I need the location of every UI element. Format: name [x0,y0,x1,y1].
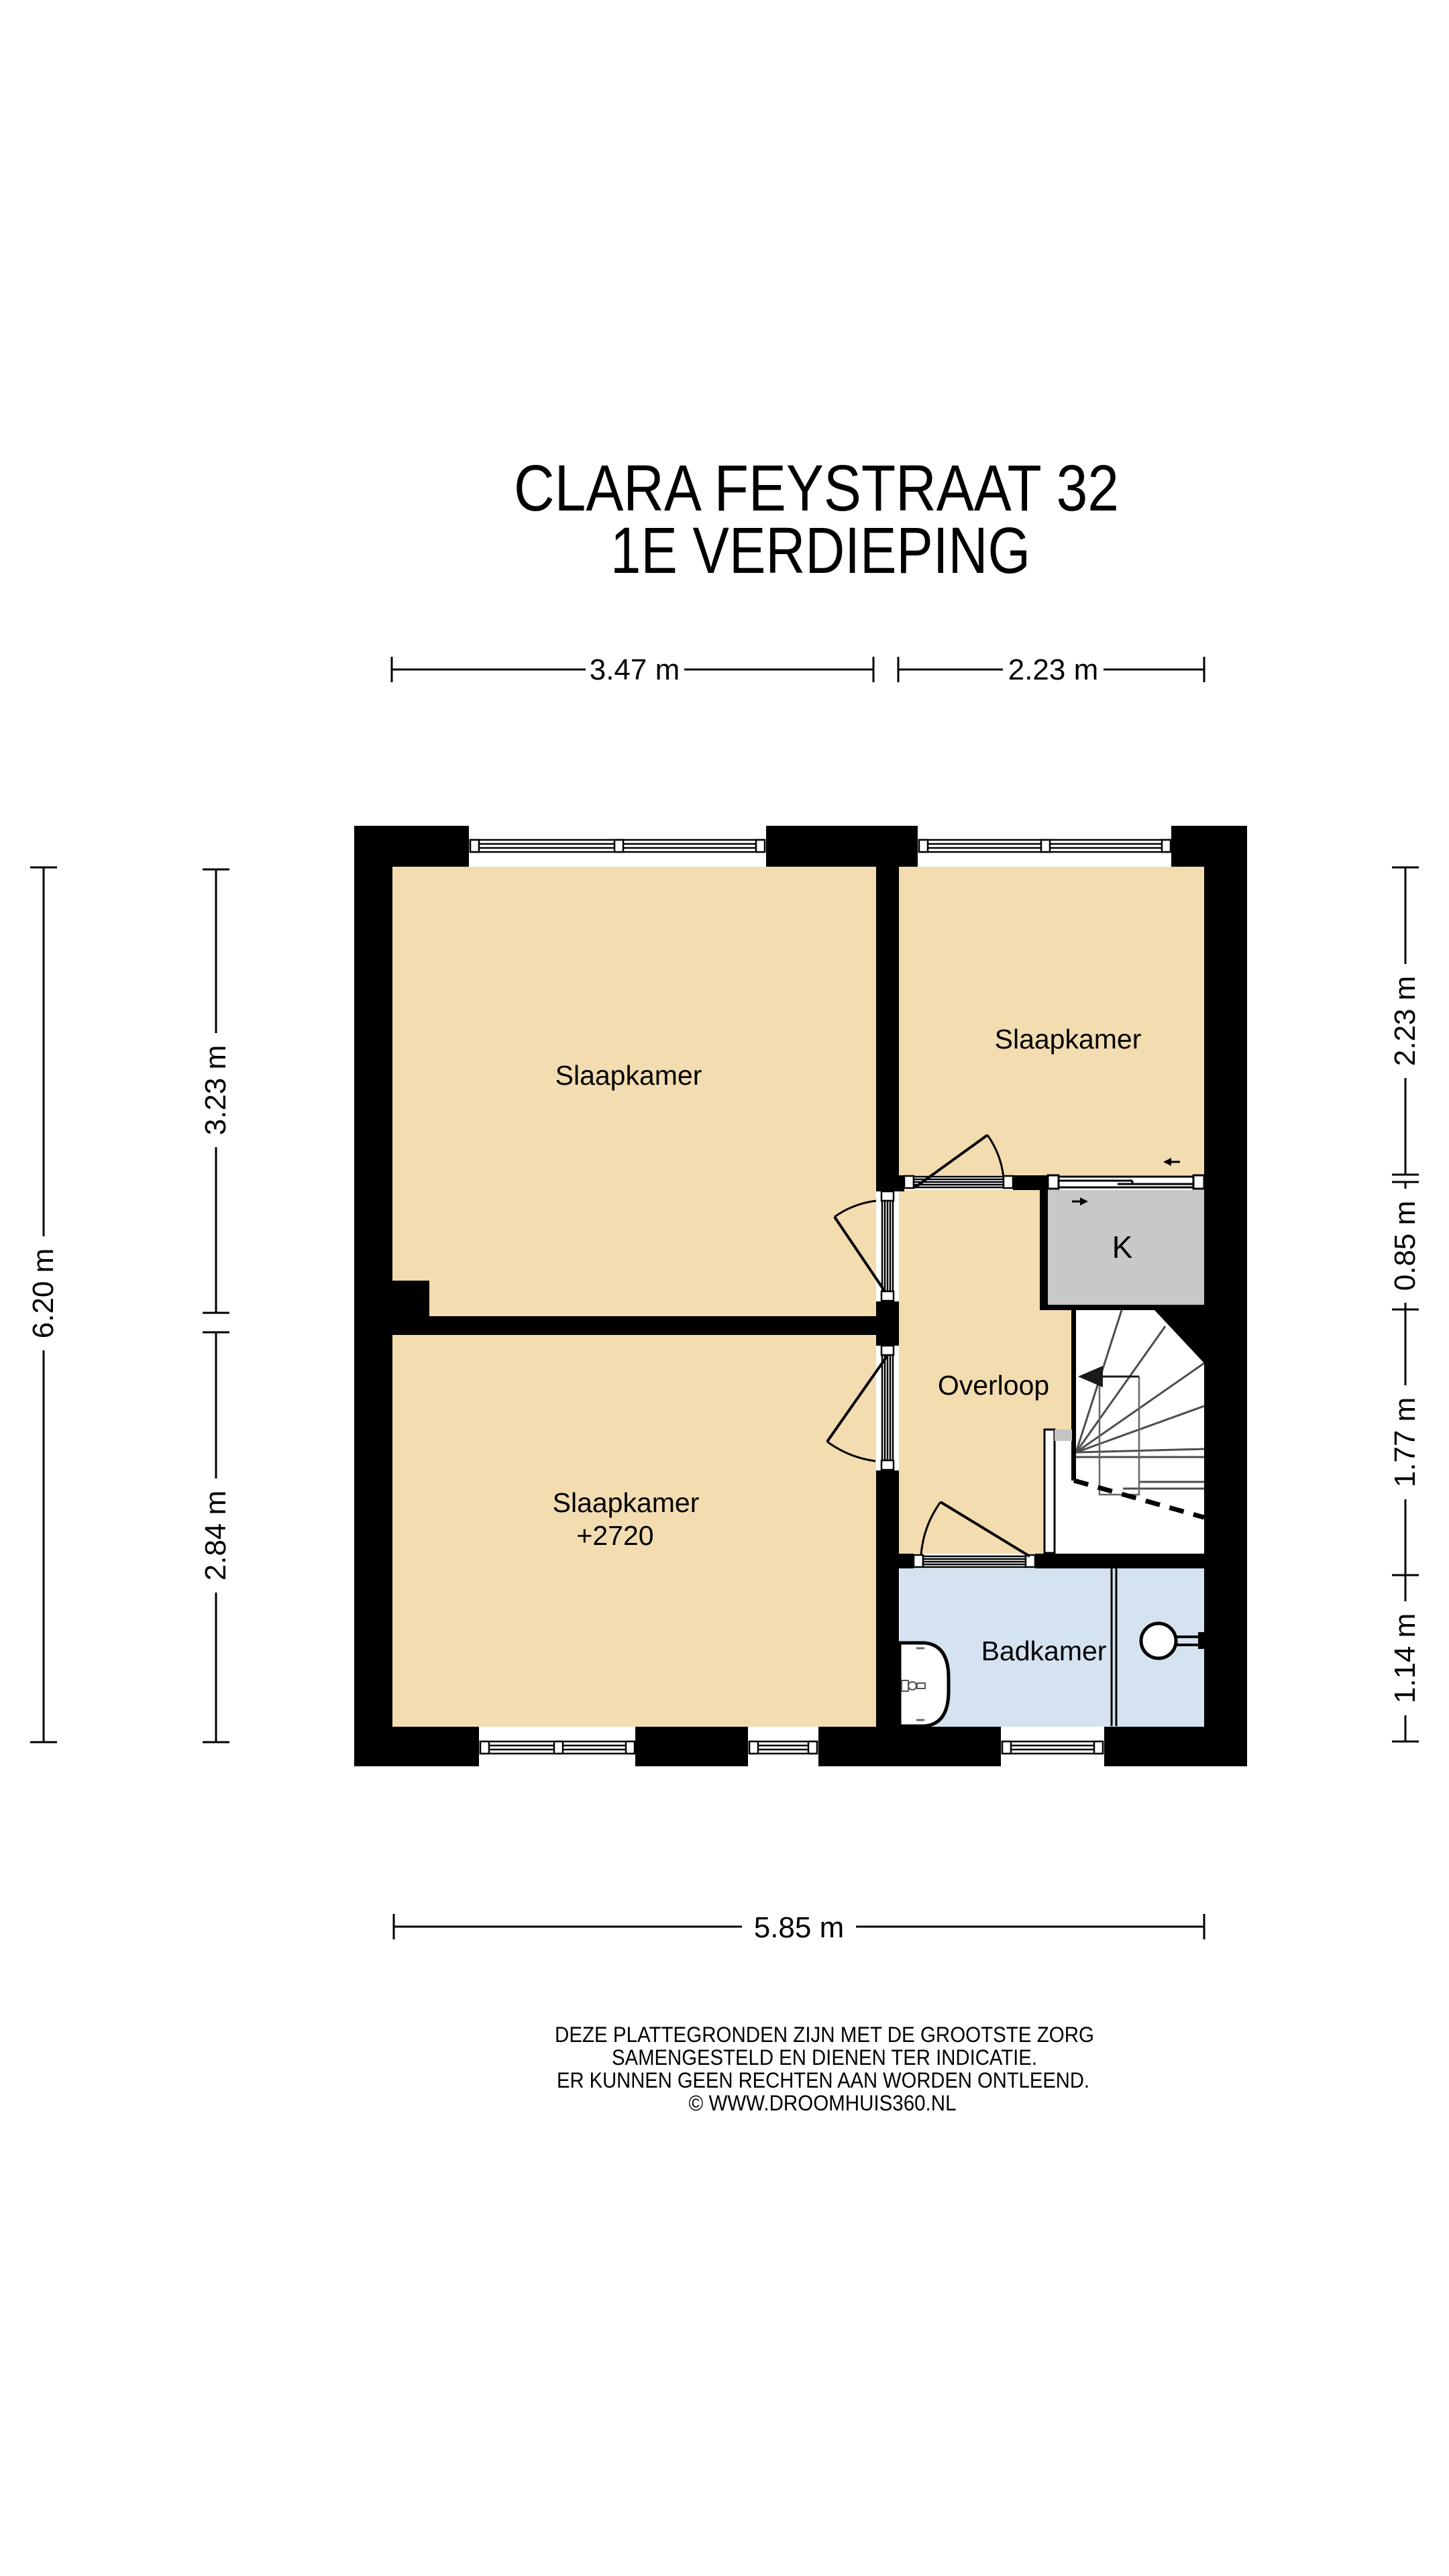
svg-text:SAMENGESTELD EN DIENEN TER IND: SAMENGESTELD EN DIENEN TER INDICATIE. [612,2045,1037,2070]
svg-text:3.47 m: 3.47 m [590,653,680,686]
svg-text:Slaapkamer: Slaapkamer [555,1060,702,1091]
svg-text:0.85 m: 0.85 m [1389,1201,1421,1291]
svg-text:Slaapkamer: Slaapkamer [553,1487,700,1518]
svg-text:3.23 m: 3.23 m [199,1045,232,1136]
svg-text:Badkamer: Badkamer [981,1635,1107,1666]
svg-text:1.77 m: 1.77 m [1389,1397,1421,1488]
svg-text:© WWW.DROOMHUIS360.NL: © WWW.DROOMHUIS360.NL [689,2091,957,2115]
svg-text:6.20 m: 6.20 m [27,1248,60,1339]
svg-text:2.84 m: 2.84 m [199,1491,232,1581]
svg-text:Overloop: Overloop [938,1370,1049,1401]
svg-text:2.23 m: 2.23 m [1008,653,1099,686]
svg-text:K: K [1112,1230,1133,1265]
svg-text:ER KUNNEN GEEN RECHTEN AAN WOR: ER KUNNEN GEEN RECHTEN AAN WORDEN ONTLEE… [557,2068,1089,2092]
svg-text:+2720: +2720 [576,1520,653,1551]
svg-text:DEZE PLATTEGRONDEN ZIJN MET DE: DEZE PLATTEGRONDEN ZIJN MET DE GROOTSTE … [555,2023,1094,2047]
svg-text:1E VERDIEPING: 1E VERDIEPING [610,514,1030,587]
svg-text:Slaapkamer: Slaapkamer [995,1024,1142,1055]
svg-text:5.85 m: 5.85 m [754,1911,845,1944]
svg-text:1.14 m: 1.14 m [1389,1613,1421,1704]
svg-text:2.23 m: 2.23 m [1389,976,1421,1067]
